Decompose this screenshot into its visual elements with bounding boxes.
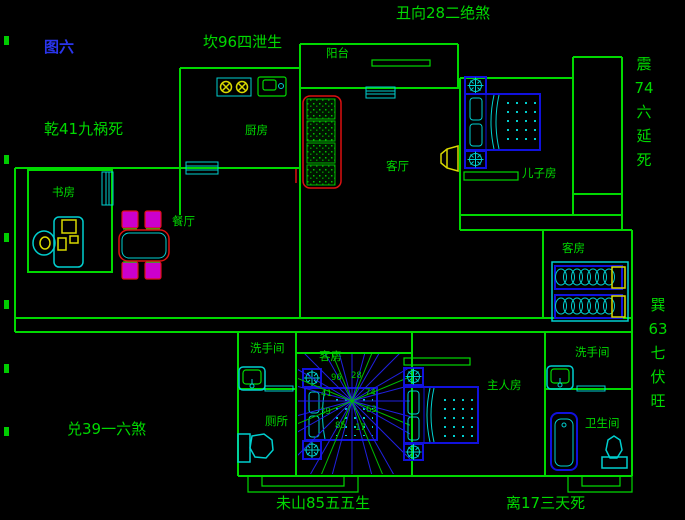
entry-steps xyxy=(248,476,632,492)
room-label-kitchen: 厨房 xyxy=(245,125,268,137)
compass-number-39: 39 xyxy=(320,407,331,417)
room-label-dining: 餐厅 xyxy=(172,216,195,228)
perimeter-label-facing: 丑向28二绝煞 xyxy=(396,6,490,21)
room-label-washroom-right: 洗手间 xyxy=(575,347,610,359)
compass-number-41: 41 xyxy=(321,389,332,399)
sink-left xyxy=(239,367,265,390)
floorplan-drawing: 96 28 74 63 17 85 39 41 xyxy=(0,0,685,520)
edge-ticks xyxy=(4,36,9,436)
compass-number-28: 28 xyxy=(351,371,362,381)
kitchen-sink xyxy=(258,77,286,96)
dining-table xyxy=(119,211,169,279)
room-label-bathroom: 卫生间 xyxy=(585,418,620,430)
perimeter-label-east: 震 74 六 延 死 xyxy=(634,52,654,172)
tv xyxy=(441,146,458,171)
bathtub xyxy=(551,413,577,470)
compass-number-74: 74 xyxy=(365,388,376,398)
toilet-right xyxy=(602,436,627,468)
room-label-guest-room-center: 客房 xyxy=(319,351,342,363)
toilet-left xyxy=(238,434,273,462)
room-label-study: 书房 xyxy=(52,187,75,199)
floorplan-canvas[interactable]: 96 28 74 63 17 85 39 41 xyxy=(0,0,685,520)
room-label-toilet: 厕所 xyxy=(265,416,288,428)
compass-number-17: 17 xyxy=(355,423,366,433)
compass-number-63: 63 xyxy=(366,405,377,415)
compass-rays-green xyxy=(232,281,472,520)
bed-master xyxy=(404,368,478,460)
guest-beds xyxy=(552,262,628,321)
perimeter-label-southeast: 巽 63 七 伏 旺 xyxy=(648,293,668,413)
room-label-balcony: 阳台 xyxy=(326,48,349,60)
figure-title: 图六 xyxy=(44,36,74,57)
compass-number-96: 96 xyxy=(331,373,342,383)
room-label-washroom-left: 洗手间 xyxy=(250,343,285,355)
perimeter-label-northwest: 乾41九祸死 xyxy=(44,122,123,137)
compass-rose xyxy=(232,281,472,520)
perimeter-label-south: 离17三天死 xyxy=(506,496,585,511)
perimeter-label-west: 兑39一六煞 xyxy=(67,422,146,437)
bed-son xyxy=(465,77,540,168)
room-label-master-room: 主人房 xyxy=(487,380,522,392)
room-label-living-room: 客厅 xyxy=(386,161,409,173)
room-label-guest-room-right: 客房 xyxy=(562,243,585,255)
compass-number-85: 85 xyxy=(335,421,346,431)
perimeter-label-southwest: 未山85五五生 xyxy=(276,496,370,511)
sofa xyxy=(303,96,341,188)
perimeter-label-north: 坎96四泄生 xyxy=(203,35,282,50)
sink-right xyxy=(547,366,573,389)
room-label-son-room: 儿子房 xyxy=(522,168,557,180)
stove xyxy=(217,78,251,96)
desk xyxy=(33,217,83,267)
